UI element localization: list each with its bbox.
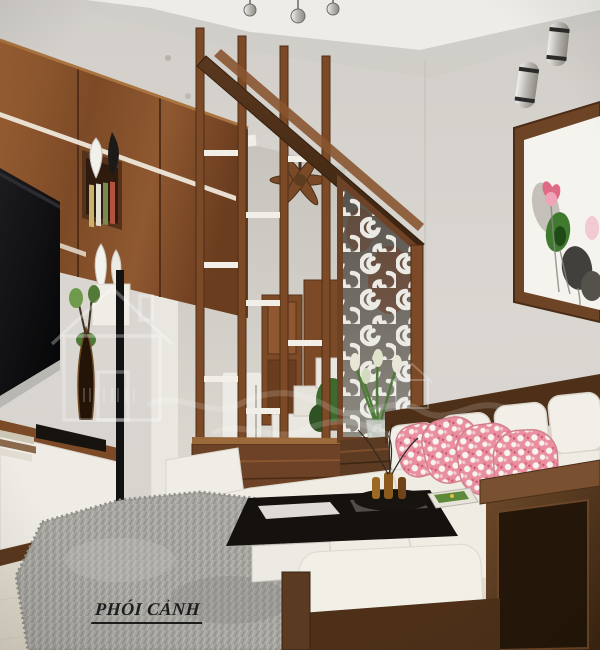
vignette [0,0,600,650]
scene-canvas [0,0,600,650]
interior-rendering: PHÓI CẢNH [0,0,600,650]
caption-phoi-canh: PHÓI CẢNH [91,599,204,624]
